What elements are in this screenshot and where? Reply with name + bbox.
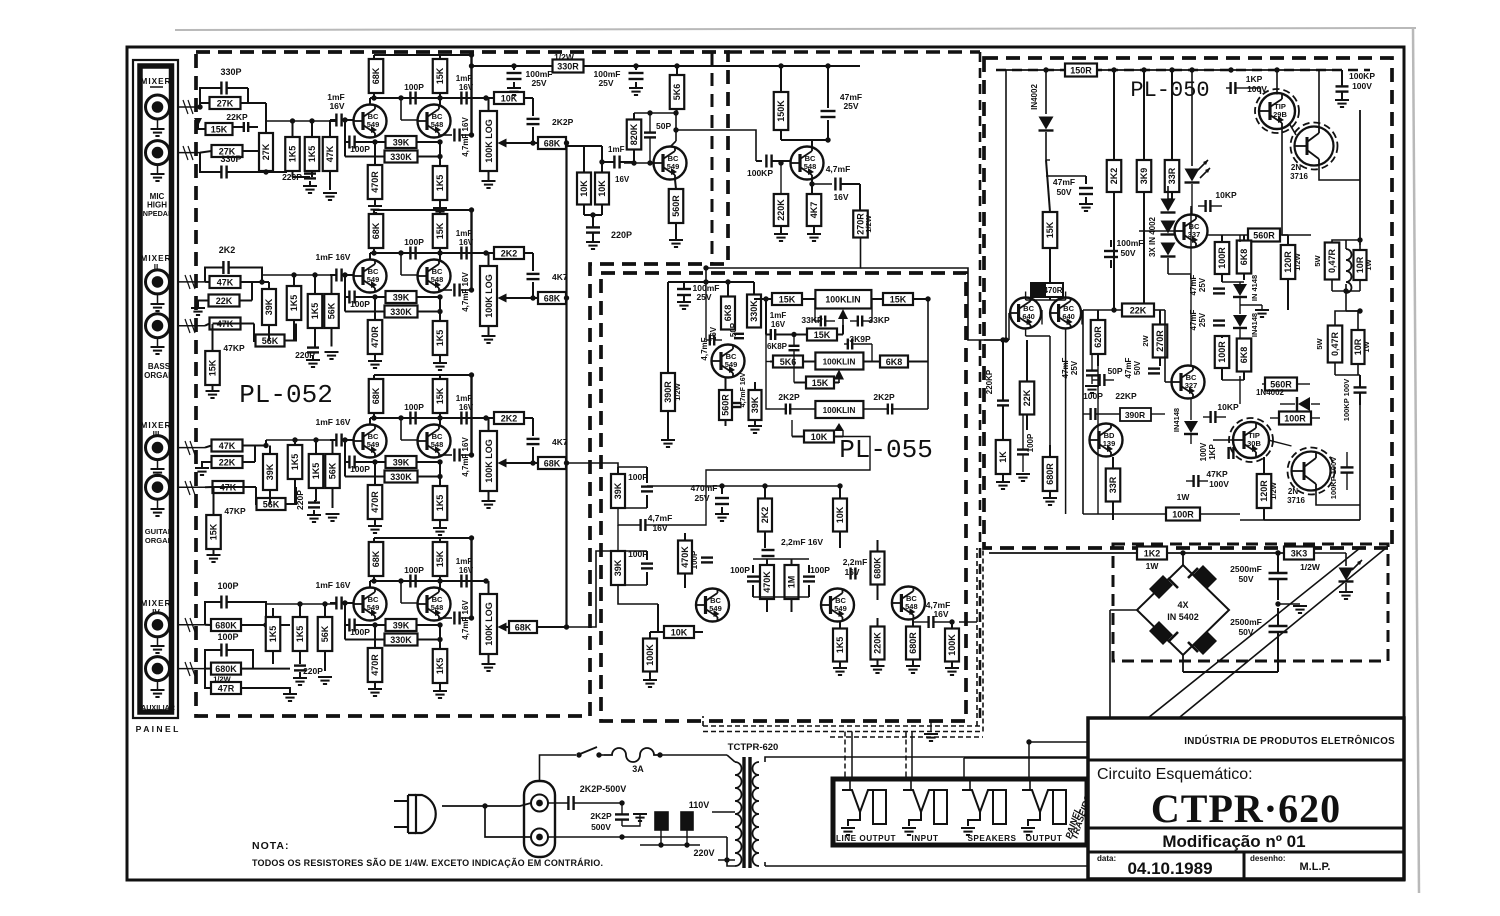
svg-text:100KLIN: 100KLIN	[825, 295, 860, 305]
svg-text:50V: 50V	[1133, 360, 1142, 375]
svg-text:50V: 50V	[1120, 248, 1135, 258]
svg-text:OUTPUT: OUTPUT	[1026, 834, 1063, 843]
svg-text:220K: 220K	[776, 199, 786, 221]
svg-text:6K8P: 6K8P	[767, 342, 788, 351]
svg-text:1K5: 1K5	[435, 495, 445, 512]
svg-text:22K: 22K	[1022, 389, 1032, 406]
svg-text:1/2W: 1/2W	[673, 382, 682, 400]
svg-text:470R: 470R	[370, 326, 380, 348]
svg-text:110V: 110V	[689, 800, 710, 810]
svg-text:AUXILIAR: AUXILIAR	[141, 703, 176, 712]
svg-text:1W: 1W	[1362, 340, 1371, 352]
svg-text:47K: 47K	[325, 145, 335, 162]
svg-text:4,7mF 16V: 4,7mF 16V	[461, 600, 470, 640]
svg-text:100KP: 100KP	[1349, 71, 1375, 81]
svg-text:25V: 25V	[531, 78, 546, 88]
svg-text:2500mF: 2500mF	[1230, 564, 1262, 574]
svg-text:100P: 100P	[690, 550, 699, 569]
svg-text:10K: 10K	[671, 627, 688, 637]
svg-text:330K: 330K	[749, 300, 759, 322]
svg-text:1mF 16V: 1mF 16V	[316, 580, 351, 590]
svg-text:4,7mF: 4,7mF	[700, 337, 709, 360]
svg-text:22K: 22K	[216, 296, 233, 306]
svg-text:MIXER: MIXER	[141, 599, 172, 608]
svg-text:M.L.P.: M.L.P.	[1300, 861, 1331, 873]
svg-text:15K: 15K	[779, 294, 796, 304]
svg-text:47KP: 47KP	[224, 506, 246, 516]
svg-text:2K2P: 2K2P	[552, 117, 574, 127]
svg-text:INPUT: INPUT	[911, 834, 938, 843]
svg-text:47K: 47K	[217, 277, 234, 287]
svg-text:IN4002: IN4002	[1030, 84, 1039, 110]
svg-text:100V: 100V	[1199, 442, 1208, 461]
svg-text:680K: 680K	[215, 664, 237, 674]
svg-text:2,2mF: 2,2mF	[843, 557, 868, 567]
svg-text:1K5: 1K5	[307, 146, 317, 163]
svg-text:330P: 330P	[220, 154, 241, 164]
svg-text:549: 549	[834, 604, 847, 613]
svg-text:15K: 15K	[435, 67, 445, 84]
svg-text:330K: 330K	[390, 472, 412, 482]
svg-text:330K: 330K	[390, 635, 412, 645]
svg-text:6K8: 6K8	[723, 305, 733, 322]
svg-text:680R: 680R	[1045, 463, 1055, 485]
svg-text:470K: 470K	[762, 571, 772, 593]
svg-text:100P: 100P	[404, 82, 424, 92]
svg-text:470R: 470R	[1043, 286, 1062, 295]
svg-text:1K5: 1K5	[289, 295, 299, 312]
svg-text:100P: 100P	[350, 299, 370, 309]
svg-text:2,2mF 16V: 2,2mF 16V	[781, 537, 823, 547]
svg-text:56K: 56K	[262, 336, 279, 346]
svg-text:1/2W: 1/2W	[864, 214, 873, 232]
svg-text:2N: 2N	[1288, 487, 1298, 496]
svg-text:2K2: 2K2	[1109, 168, 1119, 185]
svg-text:3K9: 3K9	[1139, 168, 1149, 185]
svg-text:25V: 25V	[598, 78, 613, 88]
svg-text:4K7: 4K7	[809, 202, 819, 219]
svg-text:549: 549	[709, 604, 722, 613]
svg-text:1/2W: 1/2W	[1269, 481, 1278, 499]
svg-text:1K5: 1K5	[268, 626, 278, 643]
svg-text:68K: 68K	[371, 222, 381, 239]
svg-text:4,7mF: 4,7mF	[826, 164, 851, 174]
svg-text:100P: 100P	[810, 565, 830, 575]
svg-text:1mF 16V: 1mF 16V	[316, 417, 351, 427]
svg-text:30B: 30B	[1247, 439, 1261, 448]
svg-text:LINE OUTPUT: LINE OUTPUT	[836, 834, 896, 843]
svg-text:1mF: 1mF	[770, 311, 787, 320]
svg-text:100K LOG: 100K LOG	[484, 602, 494, 646]
svg-text:1KP: 1KP	[1208, 444, 1217, 460]
svg-text:39K: 39K	[613, 482, 623, 499]
svg-text:1K: 1K	[998, 451, 1008, 463]
svg-text:39K: 39K	[393, 620, 410, 630]
svg-text:04.10.1989: 04.10.1989	[1127, 859, 1212, 878]
svg-text:1K5: 1K5	[435, 330, 445, 347]
svg-text:68K: 68K	[544, 138, 561, 148]
svg-text:548: 548	[905, 602, 918, 611]
svg-text:1mF: 1mF	[456, 74, 473, 83]
svg-text:1W: 1W	[1146, 561, 1160, 571]
svg-text:0,47R: 0,47R	[1330, 331, 1340, 356]
svg-text:15K: 15K	[211, 124, 228, 134]
svg-text:0,47R: 0,47R	[1327, 248, 1337, 273]
svg-text:470mF: 470mF	[691, 483, 718, 493]
svg-text:100R: 100R	[1284, 413, 1306, 423]
svg-text:39K: 39K	[613, 559, 623, 576]
svg-text:39K: 39K	[750, 396, 760, 413]
svg-text:139: 139	[1103, 439, 1116, 448]
svg-text:Modificação nº 01: Modificação nº 01	[1162, 832, 1305, 851]
svg-text:16V: 16V	[833, 192, 848, 202]
svg-text:Circuito Esquemático:: Circuito Esquemático:	[1097, 766, 1253, 783]
svg-text:4,7mF 16V: 4,7mF 16V	[461, 272, 470, 312]
svg-text:2500mF: 2500mF	[1230, 617, 1262, 627]
svg-text:1/2W: 1/2W	[1293, 252, 1302, 270]
svg-text:1K5: 1K5	[311, 463, 321, 480]
svg-text:25V: 25V	[1198, 277, 1207, 292]
svg-text:MIXER: MIXER	[141, 254, 172, 263]
svg-text:100KLIN: 100KLIN	[823, 358, 856, 367]
svg-text:548: 548	[431, 275, 444, 284]
svg-text:10K: 10K	[811, 432, 828, 442]
svg-text:2K2: 2K2	[501, 248, 518, 258]
svg-text:548: 548	[431, 120, 444, 129]
svg-text:100R: 100R	[1217, 341, 1227, 363]
svg-text:470R: 470R	[370, 171, 380, 193]
svg-text:68K: 68K	[371, 550, 381, 567]
svg-text:330P: 330P	[220, 67, 241, 77]
svg-text:150K: 150K	[776, 100, 786, 122]
svg-text:3716: 3716	[1290, 172, 1308, 181]
svg-text:22K: 22K	[219, 457, 236, 467]
svg-text:548: 548	[431, 603, 444, 612]
svg-text:100mF: 100mF	[1117, 238, 1144, 248]
svg-text:5K6: 5K6	[672, 84, 682, 101]
svg-text:39K: 39K	[264, 298, 274, 315]
svg-text:220KP: 220KP	[985, 369, 994, 394]
svg-text:10KP: 10KP	[1215, 190, 1237, 200]
svg-text:68K: 68K	[515, 622, 532, 632]
svg-text:1N4002: 1N4002	[1256, 388, 1285, 397]
svg-text:549: 549	[667, 162, 680, 171]
svg-text:INDÚSTRIA DE PRODUTOS ELETR: INDÚSTRIA DE PRODUTOS ELETRÔNICOS	[1184, 735, 1395, 747]
svg-text:100K LOG: 100K LOG	[484, 274, 494, 318]
svg-text:TODOS OS RESISTORES SÃO DE 1/4: TODOS OS RESISTORES SÃO DE 1/4W. EXCETO …	[252, 858, 603, 868]
svg-text:270R: 270R	[1155, 330, 1165, 352]
svg-text:327: 327	[1185, 381, 1198, 390]
svg-text:680R: 680R	[908, 632, 918, 654]
svg-text:IN 5402: IN 5402	[1167, 612, 1199, 622]
svg-text:620R: 620R	[1093, 326, 1103, 348]
svg-text:6K8: 6K8	[1239, 347, 1249, 364]
svg-text:4,7mF 16V: 4,7mF 16V	[461, 117, 470, 157]
svg-text:2W: 2W	[1141, 334, 1150, 346]
svg-text:2K2: 2K2	[760, 507, 770, 524]
svg-text:15K: 15K	[1045, 221, 1055, 238]
svg-text:220P: 220P	[295, 490, 305, 510]
svg-text:25V: 25V	[696, 292, 711, 302]
svg-text:16V: 16V	[771, 320, 786, 329]
svg-text:560R: 560R	[671, 195, 681, 217]
svg-text:337: 337	[1188, 230, 1201, 239]
svg-text:100P: 100P	[217, 581, 238, 591]
svg-text:120R: 120R	[1283, 251, 1293, 273]
svg-text:390R: 390R	[663, 381, 673, 403]
svg-text:1KP: 1KP	[1246, 74, 1263, 84]
svg-text:1mF: 1mF	[456, 557, 473, 566]
svg-text:CTPR·620: CTPR·620	[1151, 786, 1341, 831]
svg-text:ORGAN: ORGAN	[144, 371, 174, 380]
svg-text:PL-050: PL-050	[1130, 78, 1209, 103]
svg-text:15K: 15K	[890, 294, 907, 304]
svg-text:640: 640	[1022, 312, 1035, 321]
svg-text:1M: 1M	[787, 576, 797, 589]
svg-text:548: 548	[431, 440, 444, 449]
svg-text:470R: 470R	[370, 491, 380, 513]
svg-text:2K2P: 2K2P	[590, 811, 612, 821]
svg-text:100P: 100P	[217, 632, 238, 642]
svg-text:MIXER: MIXER	[141, 421, 172, 430]
svg-text:220V: 220V	[693, 848, 714, 858]
svg-text:330R: 330R	[557, 61, 579, 71]
svg-text:2K2P-500V: 2K2P-500V	[580, 784, 627, 794]
svg-text:68K: 68K	[371, 67, 381, 84]
svg-text:1K5: 1K5	[435, 658, 445, 675]
svg-text:56K: 56K	[327, 302, 337, 319]
svg-text:15K: 15K	[208, 359, 218, 376]
svg-text:10K: 10K	[597, 180, 607, 197]
svg-text:3A: 3A	[632, 764, 644, 774]
svg-text:33R: 33R	[1167, 167, 1177, 184]
svg-text:27K: 27K	[261, 143, 271, 160]
svg-text:27K: 27K	[217, 98, 234, 108]
svg-text:BASS: BASS	[148, 362, 171, 371]
svg-text:100P: 100P	[730, 565, 750, 575]
svg-text:100KP 100V: 100KP 100V	[1342, 379, 1351, 421]
svg-text:390R: 390R	[1125, 410, 1145, 420]
svg-text:100P: 100P	[628, 472, 648, 482]
svg-text:5W: 5W	[1313, 254, 1322, 266]
svg-text:470K: 470K	[680, 546, 690, 568]
svg-text:56K: 56K	[328, 462, 338, 479]
svg-text:100P: 100P	[1083, 391, 1103, 401]
svg-text:330K: 330K	[390, 307, 412, 317]
svg-text:25V: 25V	[1198, 312, 1207, 327]
svg-text:39K: 39K	[265, 463, 275, 480]
svg-text:data:: data:	[1097, 854, 1116, 863]
svg-text:549: 549	[367, 275, 380, 284]
svg-text:PL-052: PL-052	[239, 380, 333, 410]
svg-text:1K5: 1K5	[290, 454, 300, 471]
svg-text:330K: 330K	[390, 152, 412, 162]
svg-text:2K2: 2K2	[501, 413, 518, 423]
svg-text:100P: 100P	[404, 237, 424, 247]
svg-text:NOTA:: NOTA:	[252, 840, 289, 852]
svg-text:47K: 47K	[219, 441, 236, 451]
svg-text:25V: 25V	[694, 493, 709, 503]
svg-text:100P: 100P	[404, 402, 424, 412]
svg-text:220K: 220K	[873, 632, 883, 654]
svg-text:560R: 560R	[721, 394, 731, 416]
svg-text:2K2P: 2K2P	[873, 392, 895, 402]
svg-text:56K: 56K	[263, 499, 280, 509]
svg-text:22KP: 22KP	[226, 112, 248, 122]
svg-text:100V: 100V	[1209, 479, 1229, 489]
svg-text:549: 549	[367, 440, 380, 449]
svg-text:47R: 47R	[218, 683, 235, 693]
svg-text:560R: 560R	[1253, 230, 1275, 240]
svg-text:549: 549	[725, 360, 738, 369]
svg-text:100R: 100R	[1172, 509, 1194, 519]
svg-text:50V: 50V	[1056, 187, 1071, 197]
svg-text:1/2W: 1/2W	[1300, 562, 1321, 572]
svg-text:100K LOG: 100K LOG	[484, 439, 494, 483]
svg-text:6K8: 6K8	[1239, 249, 1249, 266]
svg-text:68K: 68K	[544, 293, 561, 303]
svg-text:33R: 33R	[1108, 476, 1118, 493]
svg-text:4X: 4X	[1177, 600, 1188, 610]
svg-text:100P: 100P	[404, 565, 424, 575]
svg-text:15K: 15K	[435, 550, 445, 567]
svg-text:MIXER: MIXER	[141, 77, 172, 86]
svg-text:22K: 22K	[1130, 305, 1147, 315]
svg-text:IN4148: IN4148	[1250, 313, 1259, 337]
svg-text:4,7mF 16V: 4,7mF 16V	[461, 437, 470, 477]
svg-text:10K: 10K	[835, 506, 845, 523]
svg-text:100K: 100K	[947, 634, 957, 656]
svg-text:500V: 500V	[591, 822, 611, 832]
svg-text:25V: 25V	[843, 101, 858, 111]
svg-text:15K: 15K	[209, 523, 219, 540]
svg-text:50P: 50P	[1107, 366, 1122, 376]
svg-text:68K: 68K	[371, 387, 381, 404]
svg-text:50P: 50P	[656, 121, 671, 131]
svg-text:640: 640	[1062, 312, 1075, 321]
svg-text:3K3: 3K3	[1291, 548, 1308, 558]
svg-text:1K2: 1K2	[1144, 548, 1161, 558]
svg-text:16V: 16V	[329, 101, 344, 111]
svg-text:1mF: 1mF	[608, 145, 625, 154]
svg-text:TCTPR-620: TCTPR-620	[728, 742, 779, 753]
svg-text:2K2: 2K2	[219, 245, 236, 255]
svg-text:IN 4148: IN 4148	[1250, 275, 1259, 301]
svg-text:100K LOG: 100K LOG	[484, 119, 494, 163]
svg-text:4,7mF: 4,7mF	[648, 513, 673, 523]
svg-text:1K5: 1K5	[288, 146, 298, 163]
svg-text:68K: 68K	[544, 458, 561, 468]
svg-text:47mF: 47mF	[1124, 357, 1133, 378]
svg-text:6K8: 6K8	[886, 357, 903, 367]
svg-text:16V: 16V	[844, 567, 859, 577]
svg-text:25V: 25V	[1070, 360, 1079, 375]
svg-text:SPEAKERS: SPEAKERS	[967, 834, 1016, 843]
svg-text:15K: 15K	[435, 222, 445, 239]
svg-text:50V: 50V	[1238, 574, 1253, 584]
svg-text:100KP: 100KP	[747, 168, 773, 178]
svg-text:680K: 680K	[873, 557, 883, 579]
svg-text:15K: 15K	[435, 387, 445, 404]
svg-text:50V: 50V	[1238, 627, 1253, 637]
svg-text:IN4148: IN4148	[1172, 408, 1181, 432]
svg-text:100V: 100V	[1352, 81, 1372, 91]
svg-text:47mF: 47mF	[1053, 177, 1075, 187]
svg-text:39K: 39K	[393, 292, 410, 302]
svg-text:10KP: 10KP	[1217, 402, 1239, 412]
svg-text:56K: 56K	[320, 625, 330, 642]
svg-text:29B: 29B	[1273, 110, 1287, 119]
svg-text:1K5: 1K5	[295, 626, 305, 643]
svg-text:ORGAN: ORGAN	[145, 536, 173, 545]
svg-text:548: 548	[804, 162, 817, 171]
svg-text:16V: 16V	[933, 609, 948, 619]
svg-text:39K: 39K	[393, 457, 410, 467]
svg-text:100V: 100V	[1247, 84, 1267, 94]
svg-text:1K5: 1K5	[835, 637, 845, 654]
svg-text:P A I N E L: P A I N E L	[136, 724, 179, 734]
svg-text:PL-055: PL-055	[839, 435, 933, 465]
svg-text:1mF: 1mF	[456, 229, 473, 238]
svg-text:220P: 220P	[303, 666, 323, 676]
svg-text:2K2P: 2K2P	[778, 392, 800, 402]
svg-text:100P: 100P	[350, 627, 370, 637]
svg-text:100P: 100P	[350, 464, 370, 474]
svg-text:5W: 5W	[1315, 337, 1324, 349]
svg-text:39K: 39K	[393, 137, 410, 147]
svg-text:3X IN 4002: 3X IN 4002	[1148, 216, 1157, 257]
svg-text:100P: 100P	[350, 144, 370, 154]
svg-text:470R: 470R	[370, 654, 380, 676]
svg-text:150R: 150R	[1070, 65, 1092, 75]
svg-text:10K: 10K	[579, 180, 589, 197]
svg-text:2N: 2N	[1291, 163, 1301, 172]
svg-text:820K: 820K	[629, 123, 639, 145]
svg-text:GUITAR: GUITAR	[145, 527, 174, 536]
svg-text:15K: 15K	[814, 330, 831, 340]
svg-text:47KP: 47KP	[223, 343, 245, 353]
svg-text:100KP 100V: 100KP 100V	[1329, 457, 1338, 499]
svg-text:desenho:: desenho:	[1250, 854, 1286, 863]
svg-text:47KP: 47KP	[1206, 469, 1228, 479]
svg-text:1W: 1W	[1364, 258, 1373, 270]
svg-text:1K5: 1K5	[435, 175, 445, 192]
svg-text:15K: 15K	[812, 378, 829, 388]
svg-text:1mF 16V: 1mF 16V	[316, 252, 351, 262]
svg-text:100R: 100R	[1217, 247, 1227, 269]
svg-text:3716: 3716	[1287, 496, 1305, 505]
svg-text:INPEDAN: INPEDAN	[141, 209, 173, 218]
svg-text:22KP: 22KP	[1115, 391, 1137, 401]
svg-text:120R: 120R	[1259, 480, 1269, 502]
svg-text:1mF: 1mF	[456, 394, 473, 403]
svg-text:680K: 680K	[215, 620, 237, 630]
svg-text:1W: 1W	[1177, 492, 1191, 502]
svg-text:549: 549	[367, 120, 380, 129]
svg-text:220P: 220P	[611, 230, 632, 240]
svg-text:549: 549	[367, 603, 380, 612]
svg-text:100K: 100K	[645, 644, 655, 666]
svg-text:16V: 16V	[615, 175, 630, 184]
svg-text:100KLIN: 100KLIN	[823, 406, 856, 415]
svg-text:1K5: 1K5	[310, 303, 320, 320]
